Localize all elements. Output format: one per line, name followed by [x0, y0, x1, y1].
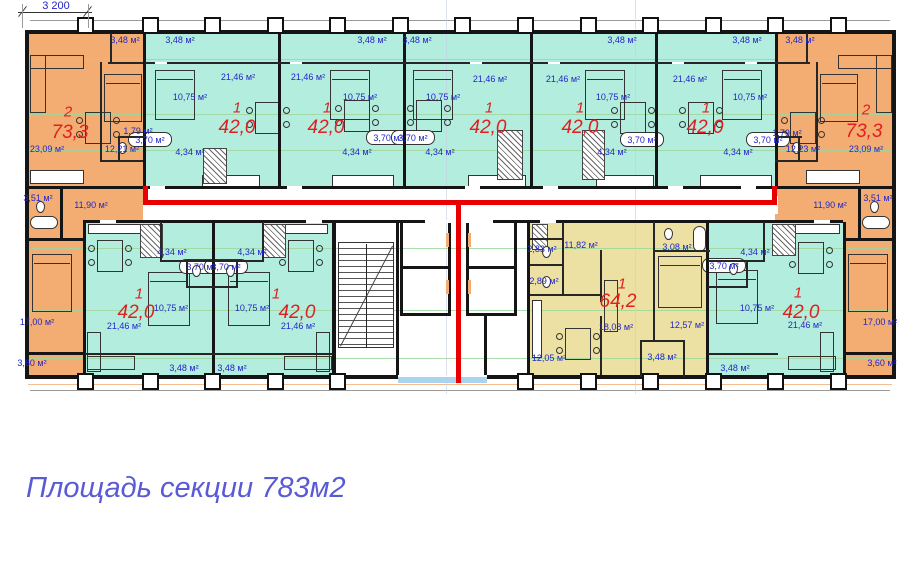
door-opening [100, 220, 116, 223]
pilaster [830, 17, 847, 34]
wall [278, 33, 281, 189]
area-label: 10,75 м² [740, 303, 774, 313]
area-label: 4,34 м² [342, 147, 371, 157]
dimension-line [18, 12, 92, 13]
sofa [87, 356, 135, 370]
grid-line [28, 59, 892, 60]
pilaster [392, 17, 409, 34]
chair [593, 333, 600, 340]
unit-label: 1 [794, 285, 802, 302]
door-opening [150, 186, 165, 189]
unit-label: 42,0 [118, 302, 155, 324]
wall [403, 33, 406, 189]
dimension-extension [88, 4, 89, 28]
area-label: 11,82 м² [564, 240, 598, 250]
pilaster [642, 17, 659, 34]
bathtub [693, 226, 706, 252]
pilaster [705, 17, 722, 34]
area-label: 4,34 м² [157, 247, 186, 257]
unit-label: 1 [702, 100, 710, 117]
area-label: 21,46 м² [673, 74, 707, 84]
bed [848, 254, 888, 312]
area-label: 3,70 м² [627, 135, 656, 145]
bed [716, 270, 758, 324]
door-opening [290, 62, 302, 64]
area-label: 3,48 м² [732, 35, 761, 45]
red-section-line [143, 186, 148, 205]
wall [775, 33, 778, 189]
wall [396, 222, 399, 375]
area-label: 3,48 м² [165, 35, 194, 45]
unit-label: 42,0 [219, 117, 256, 139]
area-label: 17,00 м² [20, 317, 54, 327]
stats-block: Площадь секции 783м2 Жилая площадь 550м2… [26, 406, 562, 564]
partition-wall [530, 238, 564, 240]
pilaster [642, 373, 659, 390]
pilaster [329, 17, 346, 34]
area-label: 12,23 м² [786, 144, 820, 154]
wall [400, 313, 451, 316]
bed [32, 254, 72, 312]
door-opening [155, 62, 167, 64]
chair [88, 259, 95, 266]
unit-label: 73,3 [846, 121, 883, 143]
partition-wall [708, 286, 748, 288]
guide-line [635, 0, 636, 394]
wall [60, 186, 63, 240]
closet [203, 148, 227, 184]
area-label: 10,75 м² [235, 303, 269, 313]
area-label: 3,70 м² [709, 261, 738, 271]
unit-label: 1 [135, 286, 143, 303]
unit-label: 1 [233, 100, 241, 117]
partition-wall [683, 340, 685, 377]
partition-wall [708, 353, 778, 355]
wall [466, 313, 517, 316]
door-opening [470, 62, 482, 64]
chair [781, 117, 788, 124]
chair [444, 119, 451, 126]
pilaster [142, 17, 159, 34]
pilaster [580, 17, 597, 34]
kitchen-counter [806, 170, 860, 184]
area-label: 3,70 м² [135, 135, 164, 145]
bathtub [30, 216, 58, 229]
chair [335, 105, 342, 112]
chair [818, 117, 825, 124]
wall [400, 222, 403, 316]
kitchen-counter [532, 300, 542, 358]
chair [246, 107, 253, 114]
chair [789, 261, 796, 268]
chair [611, 121, 618, 128]
dining-table [97, 240, 123, 272]
chair [826, 247, 833, 254]
unit-label: 42,0 [562, 117, 599, 139]
wall [466, 266, 517, 269]
red-section-line [772, 186, 777, 205]
unit-label: 42,0 [470, 117, 507, 139]
partition-wall [775, 160, 818, 162]
dimension-label: 3 200 [28, 0, 84, 12]
bed [658, 256, 702, 308]
dining-table [798, 242, 824, 274]
closet [772, 224, 796, 256]
pilaster [705, 373, 722, 390]
partition-wall [746, 260, 748, 286]
area-label: 3,48 м² [169, 363, 198, 373]
pilaster [767, 373, 784, 390]
pilaster [517, 17, 534, 34]
door-opening [287, 186, 302, 189]
chair [279, 259, 286, 266]
chair [648, 107, 655, 114]
partition-wall [100, 160, 143, 162]
chair [407, 105, 414, 112]
chair [648, 121, 655, 128]
door-opening [465, 186, 480, 189]
pilaster [767, 17, 784, 34]
chair [316, 259, 323, 266]
chair [556, 333, 563, 340]
partition-wall [530, 294, 602, 296]
partition-wall [85, 353, 332, 355]
pilaster [517, 373, 534, 390]
area-label: 23,09 м² [849, 144, 883, 154]
bed [228, 272, 270, 326]
chair [593, 347, 600, 354]
chair [125, 259, 132, 266]
pilaster [204, 17, 221, 34]
wall [655, 33, 658, 189]
dining-table [344, 100, 370, 132]
area-label: 4,34 м² [740, 247, 769, 257]
area-label: 4,34 м² [723, 147, 752, 157]
area-label: 3,51 м² [863, 193, 892, 203]
pilaster [77, 17, 94, 34]
partition-wall [108, 62, 143, 64]
chair [88, 245, 95, 252]
partition-wall [212, 286, 238, 288]
kitchen-counter [30, 170, 84, 184]
pilaster [580, 373, 597, 390]
chair [283, 107, 290, 114]
area-label: 1,79 м² [123, 126, 152, 136]
chair [679, 121, 686, 128]
guide-line [446, 0, 447, 394]
area-label: 12,21 м² [105, 144, 139, 154]
wall [28, 352, 85, 355]
kitchen-counter [88, 224, 146, 234]
area-label: 2,83 м² [527, 244, 556, 254]
pilaster [329, 373, 346, 390]
wall [843, 238, 892, 241]
partition-wall [640, 340, 642, 377]
pilaster [77, 373, 94, 390]
wall [28, 238, 85, 241]
area-label: 3,48 м² [647, 352, 676, 362]
area-label: 3,70 м² [211, 262, 240, 272]
dining-table [288, 240, 314, 272]
chair [372, 105, 379, 112]
wall [143, 33, 146, 189]
dining-table [85, 112, 111, 144]
unit-label: 73,3 [52, 122, 89, 144]
wall [530, 33, 533, 189]
door-opening [306, 220, 322, 223]
dimension-extension [22, 4, 23, 28]
door-opening [543, 186, 558, 189]
elevator-door-mark [446, 280, 449, 294]
unit-label: 64,2 [600, 291, 637, 313]
door-opening [741, 186, 756, 189]
floorplan-screenshot: 3,48 м²3,48 м²3,48 м²3,48 м²3,48 м²3,48 … [0, 0, 919, 564]
area-label: 3,60 м² [867, 358, 896, 368]
dining-table [565, 328, 591, 360]
chair [113, 117, 120, 124]
area-label: 21,46 м² [221, 72, 255, 82]
area-label: 10,75 м² [733, 92, 767, 102]
chair [125, 245, 132, 252]
chair [407, 119, 414, 126]
unit-label: 2 [862, 102, 870, 119]
area-label: 21,46 м² [291, 72, 325, 82]
area-label: 4,34 м² [237, 247, 266, 257]
sofa [316, 332, 330, 372]
wall [858, 186, 861, 240]
sofa [820, 332, 834, 372]
area-label: 3,51 м² [23, 193, 52, 203]
elevator-door-mark [468, 233, 471, 247]
bed [820, 74, 858, 122]
wall [514, 222, 517, 316]
pilaster [142, 373, 159, 390]
partition-wall [653, 222, 655, 342]
unit-label: 1 [272, 286, 280, 303]
area-label: 12,05 м² [532, 353, 566, 363]
bathtub [862, 216, 890, 229]
door-opening [548, 62, 560, 64]
area-label: 23,09 м² [30, 144, 64, 154]
area-label: 18,08 м² [599, 322, 633, 332]
chair [372, 119, 379, 126]
area-label: 10,75 м² [596, 92, 630, 102]
unit-label: 42,0 [687, 117, 724, 139]
stats-line-section-area: Площадь секции 783м2 [26, 472, 562, 505]
dining-table [620, 102, 646, 134]
unit-label: 1 [485, 100, 493, 117]
area-label: 3,48 м² [110, 35, 139, 45]
chair [826, 261, 833, 268]
wall [843, 352, 892, 355]
chair [818, 131, 825, 138]
area-label: 10,75 м² [154, 303, 188, 313]
area-label: 17,00 м² [863, 317, 897, 327]
chair [444, 105, 451, 112]
pilaster [830, 373, 847, 390]
area-label: 10,75 м² [173, 92, 207, 102]
door-opening [668, 186, 683, 189]
area-label: 3,48 м² [402, 35, 431, 45]
door-opening [540, 220, 556, 223]
partition-wall [562, 222, 564, 296]
area-label: 2,89 м² [529, 276, 558, 286]
pilaster [267, 17, 284, 34]
chair [716, 107, 723, 114]
elevator-door-mark [468, 280, 471, 294]
area-label: 3,60 м² [17, 358, 46, 368]
unit-label: 42,0 [279, 302, 316, 324]
area-label: 21,46 м² [473, 74, 507, 84]
area-label: 10,75 м² [426, 92, 460, 102]
area-label: 4,34 м² [175, 147, 204, 157]
partition-wall [186, 286, 214, 288]
door-opening [745, 62, 757, 64]
partition-wall [100, 62, 102, 162]
area-label: 3,48 м² [785, 35, 814, 45]
area-label: 12,57 м² [670, 320, 704, 330]
facade-line [30, 390, 890, 391]
elevator-door-mark [446, 233, 449, 247]
sofa [876, 55, 892, 113]
wall [484, 316, 487, 375]
partition-wall [530, 264, 564, 266]
area-label: 3,48 м² [720, 363, 749, 373]
unit-label: 42,0 [783, 302, 820, 324]
unit-label: 1 [576, 100, 584, 117]
pilaster [454, 17, 471, 34]
area-label: 4,34 м² [425, 147, 454, 157]
dining-table [416, 100, 442, 132]
entrance-strip [398, 377, 487, 383]
staircase-divider [366, 244, 367, 348]
chair [283, 121, 290, 128]
chair [316, 245, 323, 252]
wall [332, 222, 336, 375]
area-label: 1,79 м² [772, 128, 801, 138]
partition-wall [775, 62, 810, 64]
wall [400, 266, 451, 269]
area-label: 3,08 м² [662, 242, 691, 252]
area-label: 10,75 м² [343, 92, 377, 102]
area-label: 21,46 м² [546, 74, 580, 84]
area-label: 3,48 м² [607, 35, 636, 45]
area-label: 3,48 м² [357, 35, 386, 45]
area-label: 11,90 м² [74, 200, 108, 210]
building-plan: 3,48 м²3,48 м²3,48 м²3,48 м²3,48 м²3,48 … [0, 0, 919, 398]
door-opening [814, 220, 830, 223]
door-opening [672, 62, 684, 64]
sofa [30, 55, 84, 69]
unit-label: 1 [323, 100, 331, 117]
red-section-line [456, 203, 461, 383]
chair [679, 107, 686, 114]
chair [611, 107, 618, 114]
pilaster [267, 373, 284, 390]
pilaster [204, 373, 221, 390]
grid-line [28, 150, 892, 151]
unit-label: 2 [64, 104, 72, 121]
area-label: 3,48 м² [217, 363, 246, 373]
partition-wall [640, 340, 685, 342]
unit-label: 42,0 [308, 117, 345, 139]
area-label: 11,90 м² [813, 200, 847, 210]
area-label: 4,34 м² [597, 147, 626, 157]
area-label: 3,70 м² [398, 133, 427, 143]
unit-label: 1 [618, 276, 626, 293]
